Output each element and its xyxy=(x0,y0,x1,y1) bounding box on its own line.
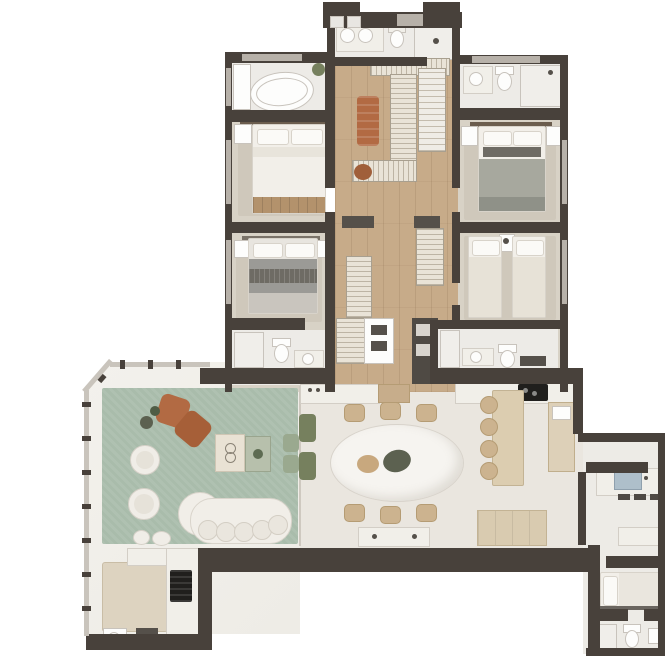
duvet xyxy=(479,159,545,197)
sink-basin xyxy=(470,351,482,363)
toilet-bowl xyxy=(500,350,515,368)
bar-stool xyxy=(480,462,498,480)
service-shower xyxy=(598,624,617,650)
armchair-cushion xyxy=(136,451,154,469)
wall xyxy=(658,433,665,655)
appliance-front xyxy=(634,494,646,500)
window xyxy=(226,140,231,204)
wood-cabinet xyxy=(378,384,410,403)
glass-railing xyxy=(110,362,210,367)
wall xyxy=(200,368,335,384)
wall xyxy=(430,368,583,384)
wall xyxy=(327,57,427,66)
pillow xyxy=(603,576,618,606)
table-plant xyxy=(253,449,263,459)
shower xyxy=(234,332,264,368)
faucet xyxy=(644,476,648,480)
railing-post xyxy=(82,402,91,407)
double-bed xyxy=(478,126,546,212)
sink-basin xyxy=(358,28,373,43)
hall-closet xyxy=(416,228,444,286)
burner xyxy=(532,391,537,396)
barbecue-grill xyxy=(170,570,192,602)
sink-basin xyxy=(469,72,483,86)
service-table xyxy=(618,527,660,546)
railing-post xyxy=(82,606,91,611)
faucet xyxy=(308,388,312,392)
twin-bed xyxy=(468,236,502,318)
hall-closet xyxy=(346,256,372,318)
window xyxy=(472,56,540,63)
toilet-bowl xyxy=(625,630,639,648)
shower xyxy=(520,65,562,107)
double-bed xyxy=(252,124,326,214)
console xyxy=(414,216,440,228)
closet-bench xyxy=(357,96,379,146)
pantry-appliances xyxy=(364,318,394,364)
wall xyxy=(606,556,665,568)
window xyxy=(242,54,302,61)
pillow xyxy=(483,131,512,146)
ottoman xyxy=(152,531,171,546)
wall-sink-fixture xyxy=(330,16,344,28)
wall xyxy=(225,318,305,330)
wall xyxy=(452,108,568,120)
dining-chair xyxy=(344,404,365,422)
round-armchair xyxy=(130,445,160,475)
wall xyxy=(325,212,335,392)
window xyxy=(226,68,231,106)
host-chair xyxy=(299,452,316,480)
wall xyxy=(586,648,665,656)
railing-post xyxy=(82,504,91,509)
window xyxy=(226,240,231,304)
bathtub-basin xyxy=(255,75,310,108)
handle xyxy=(412,534,417,539)
laundry-sink xyxy=(614,472,642,490)
kitchen-sink xyxy=(552,406,571,420)
ottoman xyxy=(133,530,150,545)
bar-stool xyxy=(480,418,498,436)
toilet-bowl xyxy=(390,30,404,48)
shower xyxy=(440,330,460,368)
pillow xyxy=(291,129,323,145)
table-bowl xyxy=(357,455,379,473)
railing-post xyxy=(82,436,91,441)
sink-basin xyxy=(340,28,355,43)
sofa-cushion xyxy=(268,515,288,535)
shower-drain xyxy=(548,70,553,75)
twin-bed xyxy=(512,236,546,318)
duvet xyxy=(619,573,661,609)
wall xyxy=(212,548,588,572)
wall xyxy=(578,472,586,545)
dining-side-counter xyxy=(300,384,380,404)
sideboard xyxy=(477,510,547,546)
window xyxy=(562,240,567,304)
wall-sink-fixture xyxy=(347,16,361,28)
dining-chair xyxy=(416,504,437,522)
host-chair xyxy=(299,414,316,442)
wall xyxy=(430,320,438,372)
appliance-front xyxy=(650,494,658,500)
glass-railing xyxy=(84,390,89,636)
side-table xyxy=(140,416,153,429)
dining-chair xyxy=(344,504,365,522)
appliance xyxy=(371,341,387,351)
wall xyxy=(452,305,460,320)
foot-blanket xyxy=(253,197,325,213)
bar-stool xyxy=(480,440,498,458)
console xyxy=(342,216,374,228)
sofa-cushion xyxy=(198,520,218,540)
wall xyxy=(586,462,648,473)
pantry-cabinet xyxy=(336,318,366,364)
pillow xyxy=(285,243,315,258)
round-armchair xyxy=(128,488,160,520)
wall xyxy=(225,110,335,122)
pouf xyxy=(283,455,299,473)
wall xyxy=(588,545,600,650)
faucet xyxy=(316,388,320,392)
bar-stool xyxy=(480,396,498,414)
duvet-foot xyxy=(479,197,545,211)
railing-post xyxy=(176,360,181,369)
wall xyxy=(596,609,628,621)
coffee-table xyxy=(245,436,271,472)
nightstand xyxy=(234,124,252,144)
appliance-front xyxy=(618,494,630,500)
window xyxy=(562,140,567,204)
railing-post xyxy=(82,538,91,543)
accent-blanket xyxy=(249,269,317,283)
nightstand xyxy=(461,126,478,146)
gourmet-table xyxy=(102,562,168,632)
sofa-cushion xyxy=(234,522,254,542)
wall xyxy=(430,320,568,329)
dining-chair xyxy=(380,402,401,420)
toilet-bowl xyxy=(497,72,512,91)
wall xyxy=(86,634,212,650)
pouf xyxy=(283,434,299,452)
railing-post xyxy=(148,360,153,369)
plant xyxy=(150,406,160,416)
dresser xyxy=(418,68,446,152)
tub-vanity xyxy=(233,64,251,110)
pillow xyxy=(516,240,544,256)
pillow xyxy=(253,243,283,258)
wall xyxy=(452,222,568,233)
lamp xyxy=(503,238,509,244)
wall xyxy=(452,12,460,188)
duvet xyxy=(469,257,501,317)
handle xyxy=(372,534,377,539)
table-decor xyxy=(225,452,236,463)
coffee-table xyxy=(215,434,245,472)
railing-post xyxy=(82,470,91,475)
sofa-cushion xyxy=(216,522,236,542)
gray-double-bed xyxy=(248,238,318,314)
pillow xyxy=(513,131,542,146)
plant xyxy=(312,63,325,76)
floor-plan xyxy=(0,0,665,665)
railing-post xyxy=(82,572,91,577)
pouf xyxy=(354,164,372,180)
console-sideboard xyxy=(358,527,430,547)
dining-chair xyxy=(380,506,401,524)
shower-drain xyxy=(433,38,439,44)
duvet-foot xyxy=(249,293,317,313)
pillow xyxy=(257,129,289,145)
toilet-bowl xyxy=(274,344,289,363)
wall xyxy=(225,222,335,233)
wall xyxy=(573,368,583,434)
sink-basin xyxy=(302,353,314,365)
wall xyxy=(578,433,665,442)
wardrobe xyxy=(390,74,417,170)
single-bed xyxy=(600,572,662,610)
dark-throw xyxy=(483,147,541,157)
dining-chair xyxy=(416,404,437,422)
window xyxy=(397,14,423,26)
railing-post xyxy=(120,360,125,369)
duvet-fold xyxy=(253,147,325,157)
bath-shelf xyxy=(520,356,546,366)
appliance xyxy=(371,325,387,335)
duvet xyxy=(513,257,545,317)
wall xyxy=(644,609,665,621)
pillow xyxy=(472,240,500,256)
armchair-cushion xyxy=(134,494,154,514)
